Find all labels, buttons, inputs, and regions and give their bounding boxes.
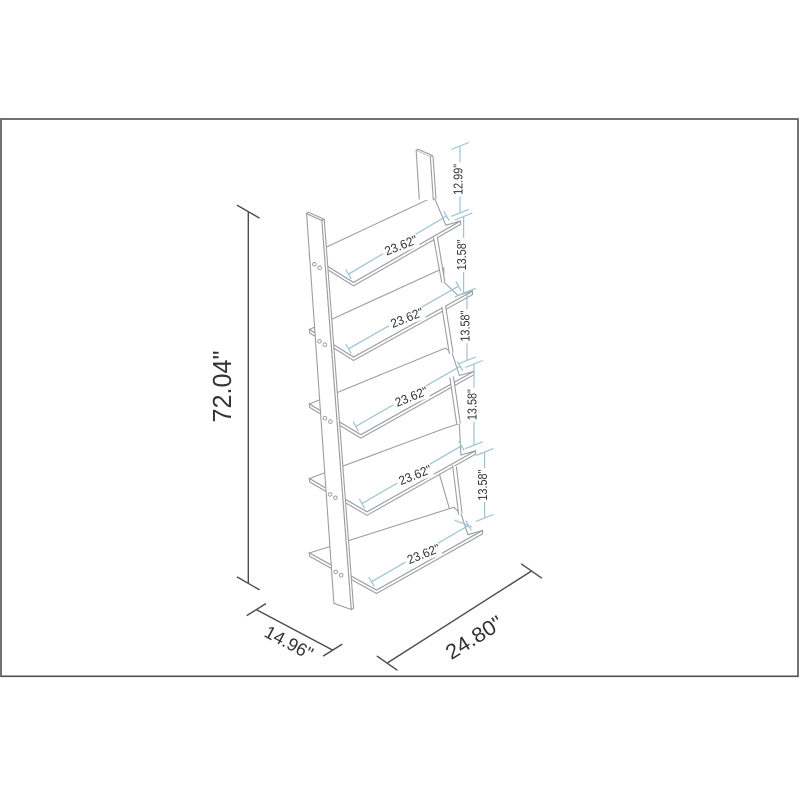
svg-text:13.58": 13.58" (476, 470, 490, 501)
svg-text:14.96": 14.96" (261, 622, 316, 664)
svg-text:13.58": 13.58" (455, 239, 469, 270)
svg-text:13.58": 13.58" (465, 389, 479, 420)
svg-text:24.80": 24.80" (442, 612, 508, 665)
svg-text:12.99": 12.99" (451, 164, 465, 195)
svg-text:72.04": 72.04" (207, 351, 237, 423)
svg-text:13.58": 13.58" (458, 311, 472, 342)
